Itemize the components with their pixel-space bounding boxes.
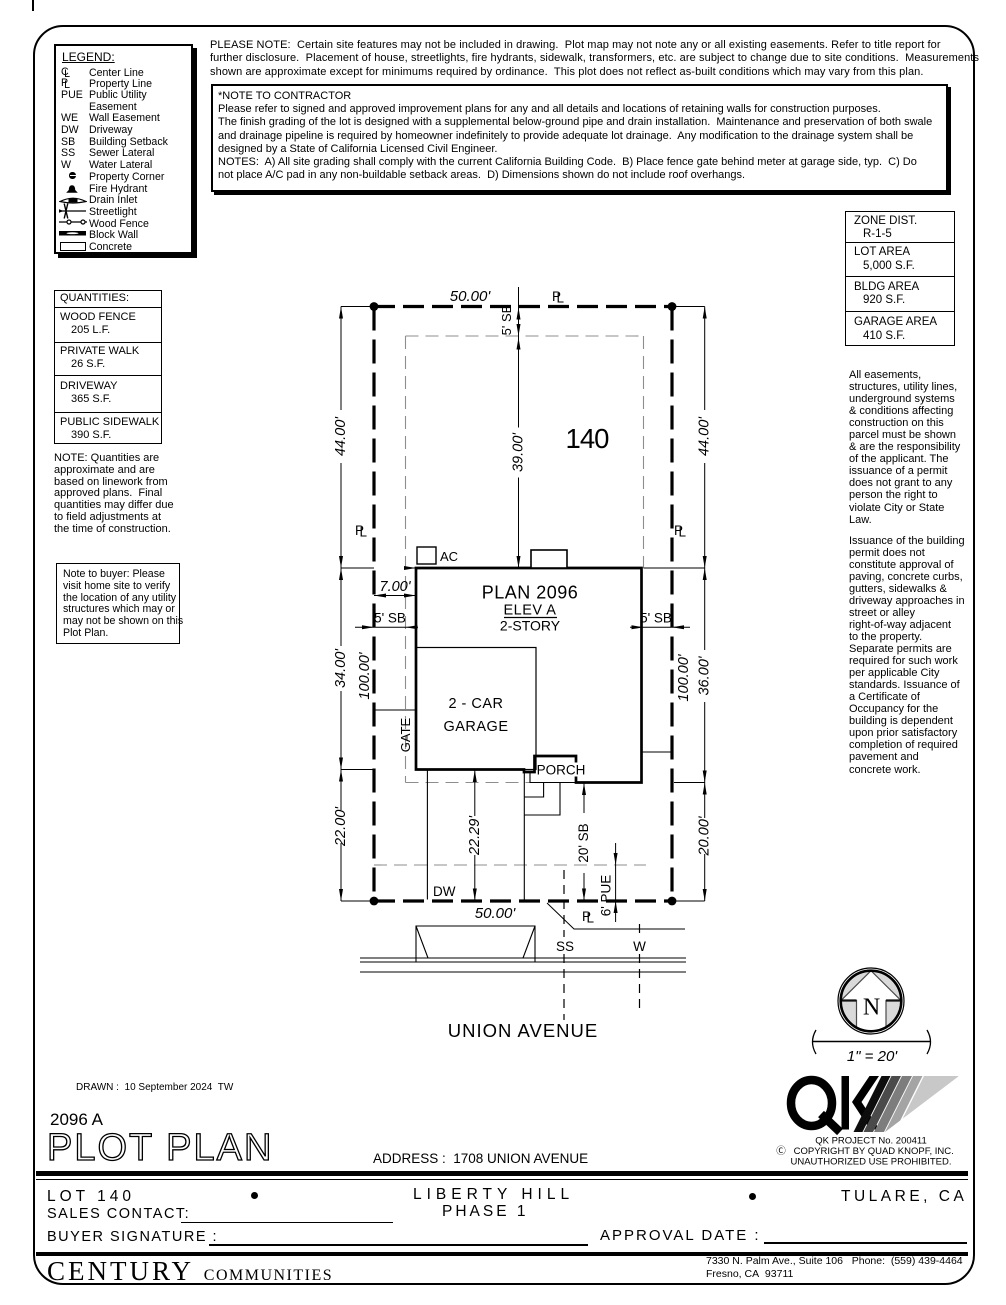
svg-text:L: L xyxy=(557,291,565,306)
svg-text:SS: SS xyxy=(556,939,574,954)
svg-text:DW: DW xyxy=(433,884,456,899)
svg-text:5' SB: 5' SB xyxy=(374,611,406,626)
svg-text:100.00': 100.00' xyxy=(357,651,373,699)
svg-text:6' PUE: 6' PUE xyxy=(599,875,614,917)
svg-text:PLAN 2096: PLAN 2096 xyxy=(482,583,579,603)
svg-text:7.00': 7.00' xyxy=(380,579,412,595)
svg-text:39.00': 39.00' xyxy=(511,432,527,472)
svg-text:QK PROJECT No. 200411: QK PROJECT No. 200411 xyxy=(815,1136,927,1147)
svg-text:AC: AC xyxy=(440,549,458,564)
svg-text:L: L xyxy=(360,525,368,540)
svg-text:22.29': 22.29' xyxy=(467,815,483,856)
svg-text:100.00': 100.00' xyxy=(676,653,692,701)
svg-text:20' SB: 20' SB xyxy=(576,823,591,862)
svg-text:44.00': 44.00' xyxy=(333,416,349,456)
svg-text:GARAGE: GARAGE xyxy=(443,719,508,735)
svg-text:UNION AVENUE: UNION AVENUE xyxy=(448,1020,598,1041)
svg-text:W: W xyxy=(633,939,646,954)
svg-text:UNAUTHORIZED USE PROHIBITED.: UNAUTHORIZED USE PROHIBITED. xyxy=(791,1157,952,1168)
svg-text:Ⓒ COPYRIGHT BY QUAD KNOPF, I: Ⓒ COPYRIGHT BY QUAD KNOPF, INC. xyxy=(776,1146,954,1157)
svg-text:50.00': 50.00' xyxy=(450,288,492,305)
svg-text:34.00': 34.00' xyxy=(333,648,349,688)
svg-text:L: L xyxy=(587,911,595,926)
svg-text:36.00': 36.00' xyxy=(697,655,713,695)
svg-text:5' SB: 5' SB xyxy=(499,305,514,336)
svg-text:22.00': 22.00' xyxy=(333,806,349,847)
svg-text:140: 140 xyxy=(566,423,610,454)
svg-text:PORCH: PORCH xyxy=(537,763,586,778)
svg-text:2-STORY: 2-STORY xyxy=(500,618,561,634)
svg-text:GATE: GATE xyxy=(398,717,413,752)
svg-text:N: N xyxy=(863,995,880,1021)
svg-text:50.00': 50.00' xyxy=(475,905,517,922)
svg-text:20.00': 20.00' xyxy=(697,815,713,856)
svg-text:2 - CAR: 2 - CAR xyxy=(448,696,503,712)
svg-text:ELEV A: ELEV A xyxy=(504,603,557,619)
svg-text:5' SB: 5' SB xyxy=(640,611,672,626)
svg-text:1" = 20': 1" = 20' xyxy=(847,1048,898,1065)
svg-text:L: L xyxy=(679,525,687,540)
svg-text:44.00': 44.00' xyxy=(697,416,713,456)
